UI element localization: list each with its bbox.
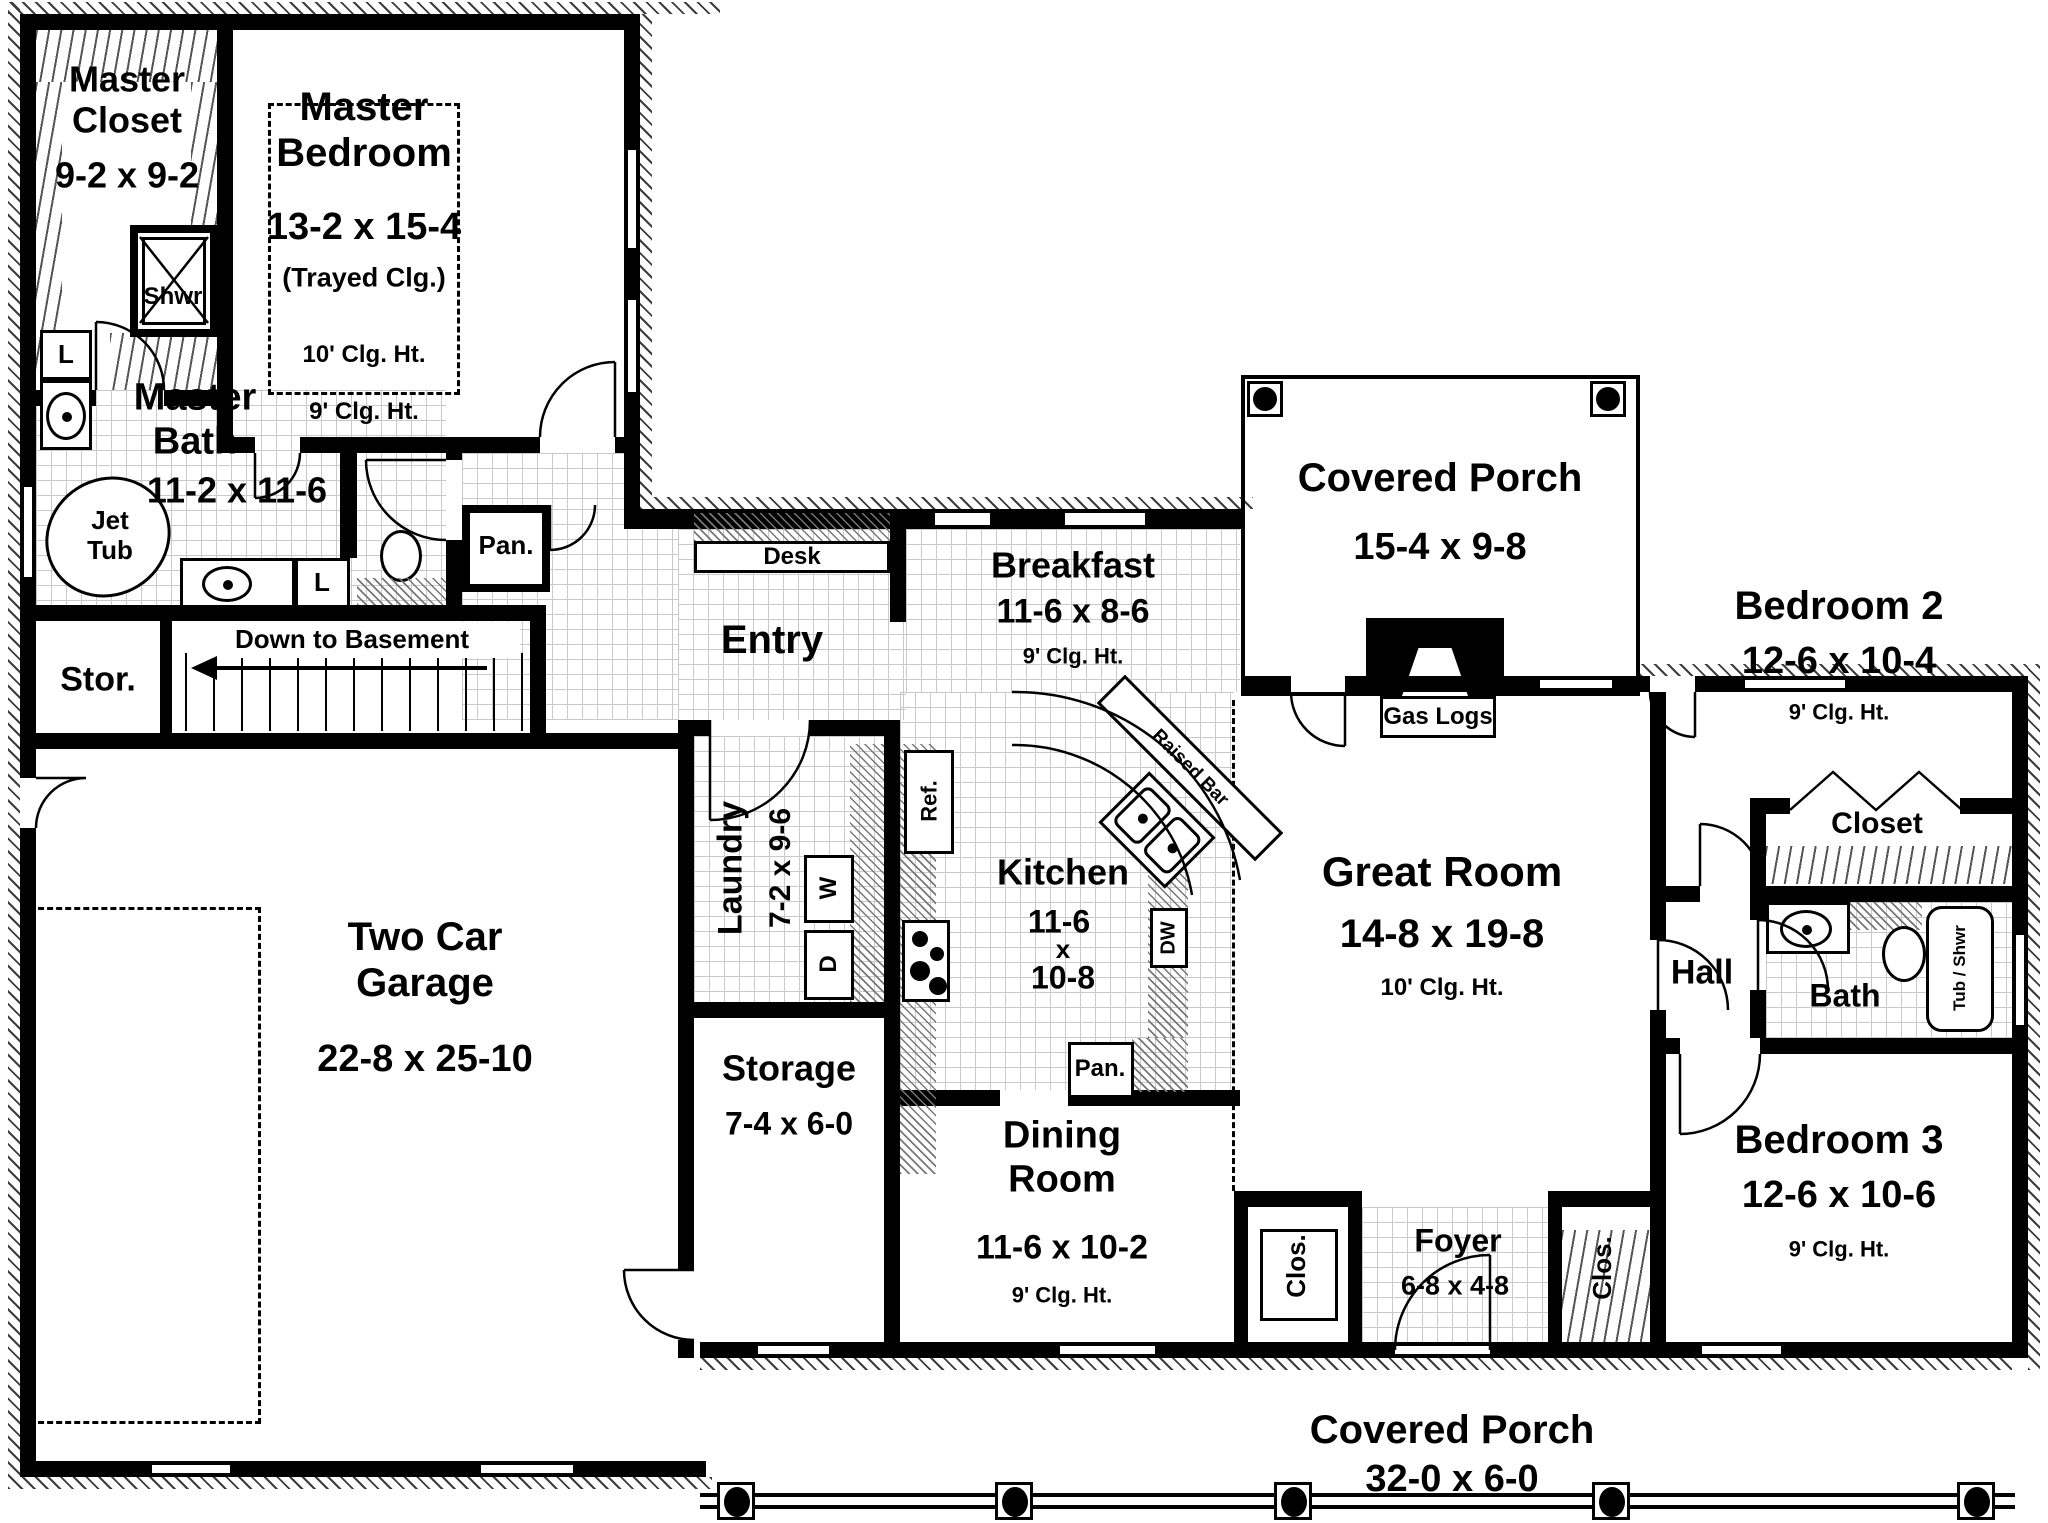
stairs-label: Down to Basement: [235, 625, 469, 655]
wall: [230, 1461, 481, 1477]
wall: [1234, 1191, 1362, 1207]
dryer-label: D: [815, 955, 843, 972]
room-divider-dashed: [1232, 700, 1235, 1191]
wall: [446, 437, 462, 460]
stove: [902, 920, 950, 1002]
tile-floor-hall-strip: [462, 453, 640, 509]
wall: [1548, 1207, 1562, 1342]
wall: [1750, 990, 1766, 1038]
room-dims-garage: 22-8 x 25-10: [317, 1038, 533, 1082]
room-label-breakfast: Breakfast: [991, 544, 1155, 585]
wall: [573, 1461, 706, 1477]
porch-post: [1274, 1482, 1312, 1520]
room-label-stor: Stor.: [60, 660, 136, 699]
sink-icon: [202, 566, 252, 602]
wall: [1640, 676, 1650, 692]
toilet-icon: [1882, 926, 1926, 982]
porch-post: [1592, 1482, 1630, 1520]
wall: [884, 736, 900, 1018]
wall: [1666, 1038, 1680, 1054]
garage-dashed-area: [20, 907, 261, 1424]
room-dims-breakfast: 11-6 x 8-6: [996, 592, 1149, 631]
room-label-bedroom2: Bedroom 2: [1735, 583, 1944, 629]
exterior-hatch: [640, 497, 1253, 509]
wall: [160, 621, 172, 733]
room-dims-kitchen: 10-8: [1031, 960, 1095, 997]
wall: [1781, 1342, 2012, 1358]
room-label-hall: Hall: [1671, 953, 1733, 992]
pantry-label: Pan.: [1075, 1055, 1126, 1083]
ceiling-height-lower: 9' Clg. Ht.: [309, 398, 419, 426]
wall: [20, 577, 36, 778]
ceiling-height: 9' Clg. Ht.: [1789, 699, 1890, 724]
ceiling-height: 10' Clg. Ht.: [1380, 974, 1503, 1002]
window: [1540, 676, 1612, 692]
wall: [2012, 676, 2028, 935]
linen-label: L: [314, 568, 330, 598]
dishwasher-label: DW: [1158, 921, 1181, 954]
room-label-bedroom3: Bedroom 3: [1735, 1117, 1944, 1163]
porch-railing: [700, 1493, 2015, 1509]
laundry-counter-hatch: [850, 744, 884, 1002]
wall: [1762, 886, 2012, 902]
stairs-treads: [185, 653, 543, 731]
window: [758, 1342, 829, 1358]
room-dims-master-closet: 9-2 x 9-2: [55, 154, 199, 195]
wall: [1695, 676, 1745, 692]
wall: [1960, 798, 2012, 814]
kitchen-counter-hatch: [1132, 1038, 1188, 1092]
wall: [340, 453, 357, 558]
wall: [1650, 1010, 1666, 1060]
room-label-storage: Storage: [722, 1047, 856, 1088]
wall: [990, 509, 1065, 529]
exterior-hatch: [2028, 664, 2040, 1370]
wall: [1750, 902, 1766, 920]
desk-label: Desk: [763, 543, 820, 571]
window: [1065, 509, 1145, 529]
fridge-label: Ref.: [916, 780, 941, 822]
room-label-master-bath: Master Bath: [105, 376, 285, 463]
wall: [300, 437, 540, 453]
wall: [1760, 1038, 2012, 1054]
ceiling-height: 9' Clg. Ht.: [1789, 1236, 1890, 1261]
wall: [829, 1342, 1060, 1358]
room-label-porch-bottom: Covered Porch: [1310, 1407, 1595, 1453]
room-label-master-closet: Master Closet: [32, 59, 222, 142]
room-label-bath: Bath: [1809, 978, 1880, 1015]
wall: [20, 1461, 152, 1477]
exterior-hatch: [8, 2, 720, 14]
wall: [1612, 676, 1640, 692]
wall: [2012, 1025, 2028, 1358]
wall: [678, 1340, 694, 1358]
room-label-kitchen: Kitchen: [997, 851, 1129, 892]
window: [1060, 1342, 1155, 1358]
room-label-master-bedroom: Master Bedroom: [224, 84, 504, 176]
counter-hatch: [1850, 902, 1922, 930]
window: [481, 1461, 573, 1477]
wall: [36, 733, 694, 749]
wall: [1345, 676, 1540, 692]
wall: [700, 1342, 758, 1358]
room-dims-bedroom3: 12-6 x 10-6: [1742, 1174, 1936, 1218]
wall: [1348, 1207, 1362, 1342]
room-dims-storage: 7-4 x 6-0: [725, 1106, 853, 1143]
window: [624, 150, 640, 248]
window: [1702, 1342, 1781, 1358]
room-note-master-bedroom: (Trayed Clg.): [282, 262, 446, 293]
room-dims-porch-bottom: 32-0 x 6-0: [1365, 1458, 1538, 1502]
linen-label: L: [58, 340, 74, 370]
desk-counter-hatch: [694, 513, 890, 541]
room-label-foyer: Foyer: [1414, 1223, 1501, 1260]
front-door: [1395, 1342, 1490, 1358]
wall: [1234, 1207, 1248, 1342]
wall: [1650, 692, 1666, 940]
room-dims-porch-top: 15-4 x 9-8: [1353, 526, 1526, 570]
room-label-laundry: Laundry: [711, 801, 750, 935]
closet-label: Clos.: [1588, 1236, 1618, 1300]
toilet-icon: [380, 530, 422, 582]
wall: [1155, 1342, 1395, 1358]
wall: [624, 14, 640, 150]
wall: [1490, 1342, 1702, 1358]
window: [624, 300, 640, 392]
room-dims-great-room: 14-8 x 19-8: [1340, 911, 1545, 957]
room-label-garage: Two Car Garage: [310, 914, 540, 1006]
room-dims-dining: 11-6 x 10-2: [976, 1228, 1148, 1267]
sink-icon: [46, 392, 86, 440]
wall: [678, 1002, 900, 1018]
room-label-porch-top: Covered Porch: [1298, 455, 1583, 501]
room-dims-master-bedroom: 13-2 x 15-4: [267, 206, 461, 250]
room-dims-foyer: 6-8 x 4-8: [1401, 1270, 1509, 1301]
window: [935, 509, 990, 529]
room-label-dining: Dining Room: [972, 1114, 1152, 1201]
closet-label: Clos.: [1282, 1234, 1312, 1298]
window: [20, 487, 36, 577]
exterior-hatch: [640, 14, 652, 509]
room-dims-laundry: 7-2 x 9-6: [764, 808, 799, 928]
ceiling-height-upper: 10' Clg. Ht.: [302, 341, 425, 369]
stairs-arrow-line: [215, 666, 487, 670]
jet-tub-label: Jet Tub: [70, 506, 150, 566]
porch-post: [995, 1482, 1033, 1520]
room-label-closet2: Closet: [1831, 807, 1923, 842]
wall: [1548, 1191, 1650, 1207]
wall: [615, 437, 640, 453]
room-dims-master-bath: 11-2 x 11-6: [147, 469, 327, 510]
room-label-entry: Entry: [721, 617, 823, 663]
exterior-hatch: [8, 1477, 712, 1489]
wall: [20, 14, 640, 30]
wall: [678, 720, 710, 736]
porch-post: [1957, 1482, 1995, 1520]
toilet-ledge-hatch: [357, 578, 446, 605]
pantry-label: Pan.: [479, 531, 534, 561]
porch-post: [717, 1482, 755, 1520]
washer-label: W: [815, 877, 843, 900]
window: [2012, 935, 2028, 1025]
stairs-arrow-head: [191, 656, 217, 680]
wall: [624, 248, 640, 300]
porch-column: [1590, 381, 1626, 417]
room-dims-bedroom2: 12-6 x 10-4: [1742, 640, 1936, 684]
gas-logs-label: Gas Logs: [1383, 703, 1492, 731]
porch-column: [1247, 381, 1283, 417]
shower-stall: [130, 225, 218, 337]
shower-label: Shwr: [144, 283, 203, 311]
exterior-hatch: [8, 2, 20, 1489]
wall: [1241, 676, 1291, 692]
wall: [1145, 509, 1241, 529]
wall: [1666, 886, 1700, 902]
wall: [884, 1018, 900, 1342]
hall-opening-dashed: [1656, 1060, 1659, 1130]
ceiling-height: 9' Clg. Ht.: [1012, 1282, 1113, 1307]
sink-icon: [1780, 910, 1832, 948]
window: [152, 1461, 230, 1477]
tub-shower-label: Tub / Shwr: [1950, 925, 1970, 1011]
exterior-hatch: [700, 1358, 2012, 1370]
wall: [890, 509, 906, 622]
floor-plan: Master Closet 9-2 x 9-2 Master Bedroom 1…: [0, 0, 2048, 1523]
closet-rod-hatch: [1766, 846, 2012, 884]
wall: [810, 720, 900, 736]
room-label-great-room: Great Room: [1322, 848, 1562, 896]
ceiling-height: 9' Clg. Ht.: [1023, 643, 1124, 668]
